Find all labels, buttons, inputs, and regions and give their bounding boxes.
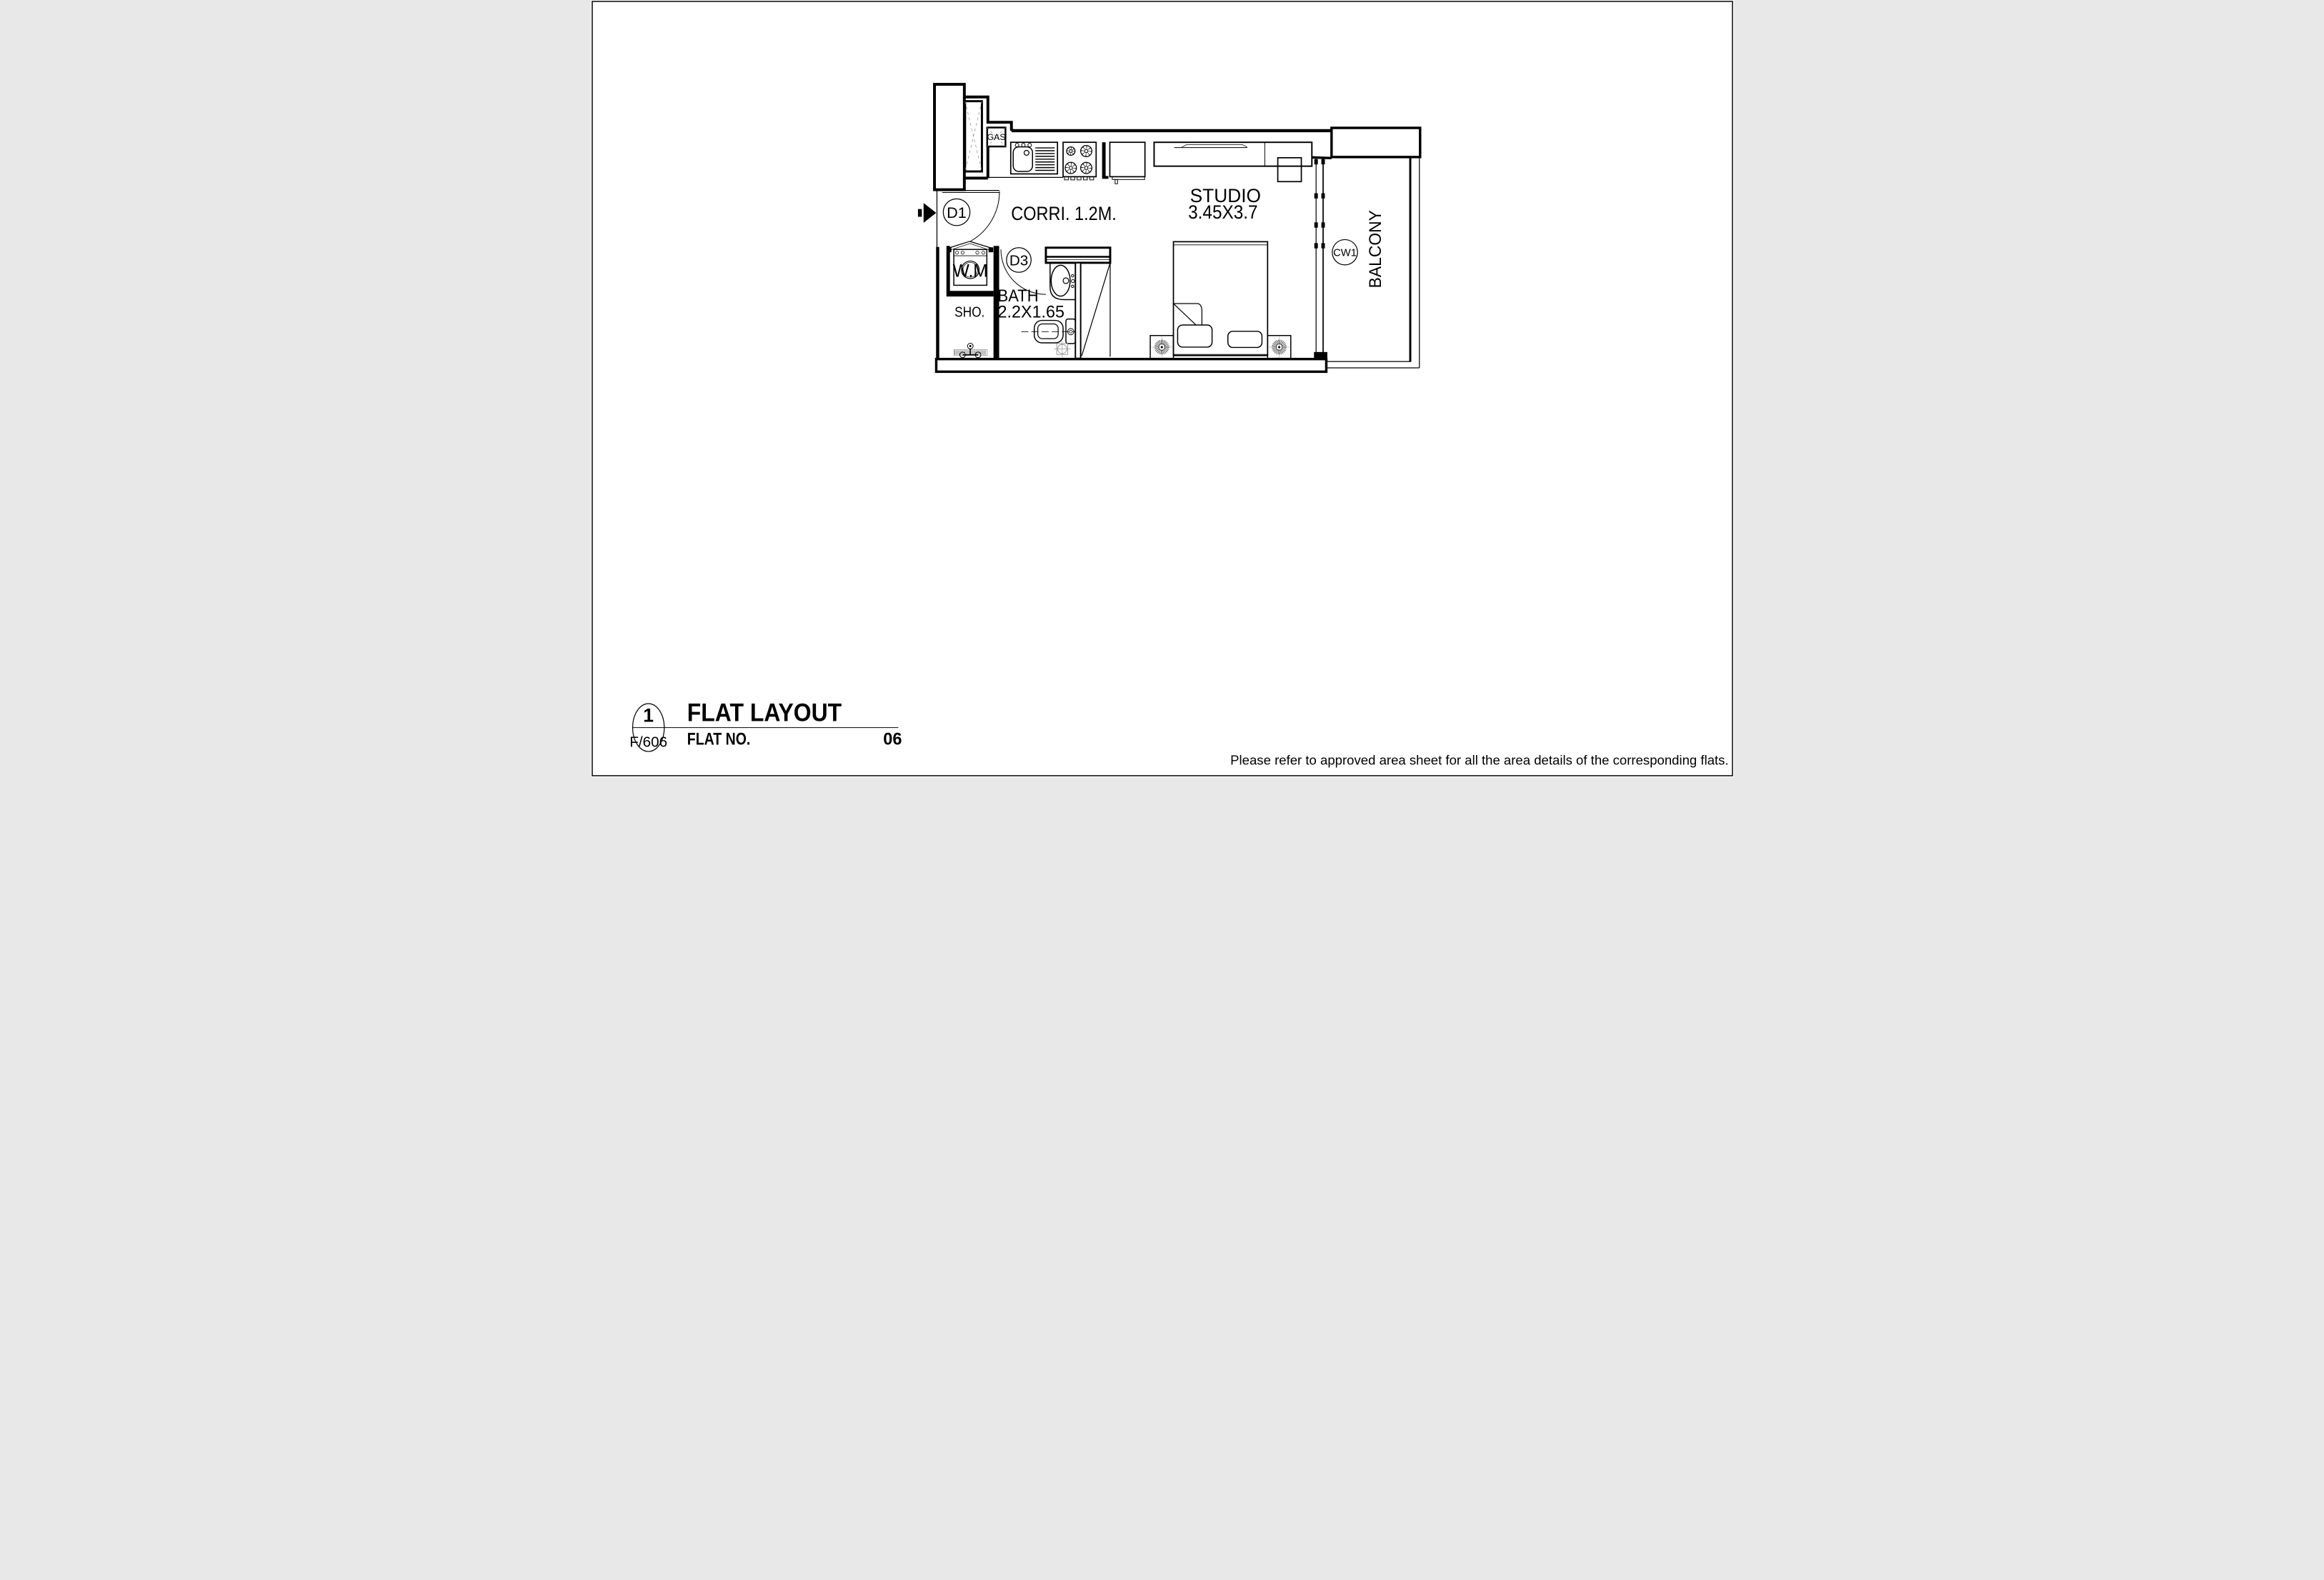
nightstand-left (1150, 336, 1173, 359)
door-d1-label: D1 (947, 204, 967, 221)
counter-divider (1102, 142, 1105, 176)
bath-dims-label: 2.2X1.65 (997, 304, 1064, 322)
nightstand-right (1267, 336, 1290, 359)
media-unit (1154, 142, 1312, 166)
bath-label: BATH (997, 287, 1038, 306)
kitchen-area: GAS (964, 101, 1311, 184)
kitchen-cabinet (964, 101, 982, 171)
window-cw1-tag: CW1 (1332, 239, 1357, 264)
shower-label: SHO. (954, 304, 984, 321)
flat-no-value: 06 (883, 731, 902, 749)
gas-label: GAS (987, 132, 1005, 142)
wash-basin (1049, 263, 1074, 300)
laundry-closet: W.M (946, 241, 999, 359)
door-d1-swing-arc (970, 191, 999, 241)
bottom-wall (936, 359, 1326, 372)
balcony-top-wall (1331, 128, 1420, 157)
bed (1173, 241, 1267, 355)
floor-drain (1054, 341, 1070, 357)
bath-right-wall (1075, 263, 1080, 359)
studio-dims-label: 3.45X3.7 (1188, 201, 1257, 223)
pillow-right (1227, 331, 1262, 348)
corridor-label: CORRI. 1.2M. (1011, 203, 1117, 224)
title-block: 1 F/606 FLAT LAYOUT FLAT NO. 06 (629, 698, 902, 751)
flat-no-label: FLAT NO. (687, 731, 750, 749)
bathroom: D3 (997, 248, 1109, 359)
kitchen-sink (1010, 142, 1057, 174)
window-wall: CW1 (1312, 157, 1357, 359)
area-note: Please refer to approved area sheet for … (1230, 753, 1728, 767)
flat-layout-plan: GAS (591, 0, 1734, 777)
door-d1-tag: D1 (943, 199, 969, 225)
page-border (592, 1, 1732, 776)
structural-column (934, 84, 964, 190)
lamp-icon (1268, 336, 1290, 358)
entry-arrow-icon (917, 203, 936, 223)
lamp-icon (1151, 336, 1172, 358)
detail-ref: F/606 (629, 734, 667, 751)
pillow-left (1177, 325, 1212, 347)
washing-machine-label: W.M (952, 262, 987, 281)
stove (1063, 142, 1096, 180)
entry: D1 (917, 191, 999, 241)
fridge (1109, 142, 1144, 184)
detail-number: 1 (643, 704, 654, 726)
door-d3-label: D3 (1009, 252, 1027, 269)
bifold-doors (948, 241, 991, 250)
drainboard (1035, 148, 1054, 170)
side-table (1277, 158, 1301, 181)
counter-divider-foot (1102, 176, 1108, 179)
sheet-title: FLAT LAYOUT (687, 698, 842, 726)
balcony-label: BALCONY (1367, 210, 1385, 288)
gas-point: GAS (987, 128, 1005, 147)
drawing-sheet: GAS (591, 0, 1734, 777)
toilet (1021, 319, 1079, 344)
door-d3-tag: D3 (1006, 248, 1030, 272)
shower-room: SHO. (954, 304, 987, 358)
shaft (1082, 263, 1110, 356)
window-cw1-label: CW1 (1333, 248, 1357, 259)
